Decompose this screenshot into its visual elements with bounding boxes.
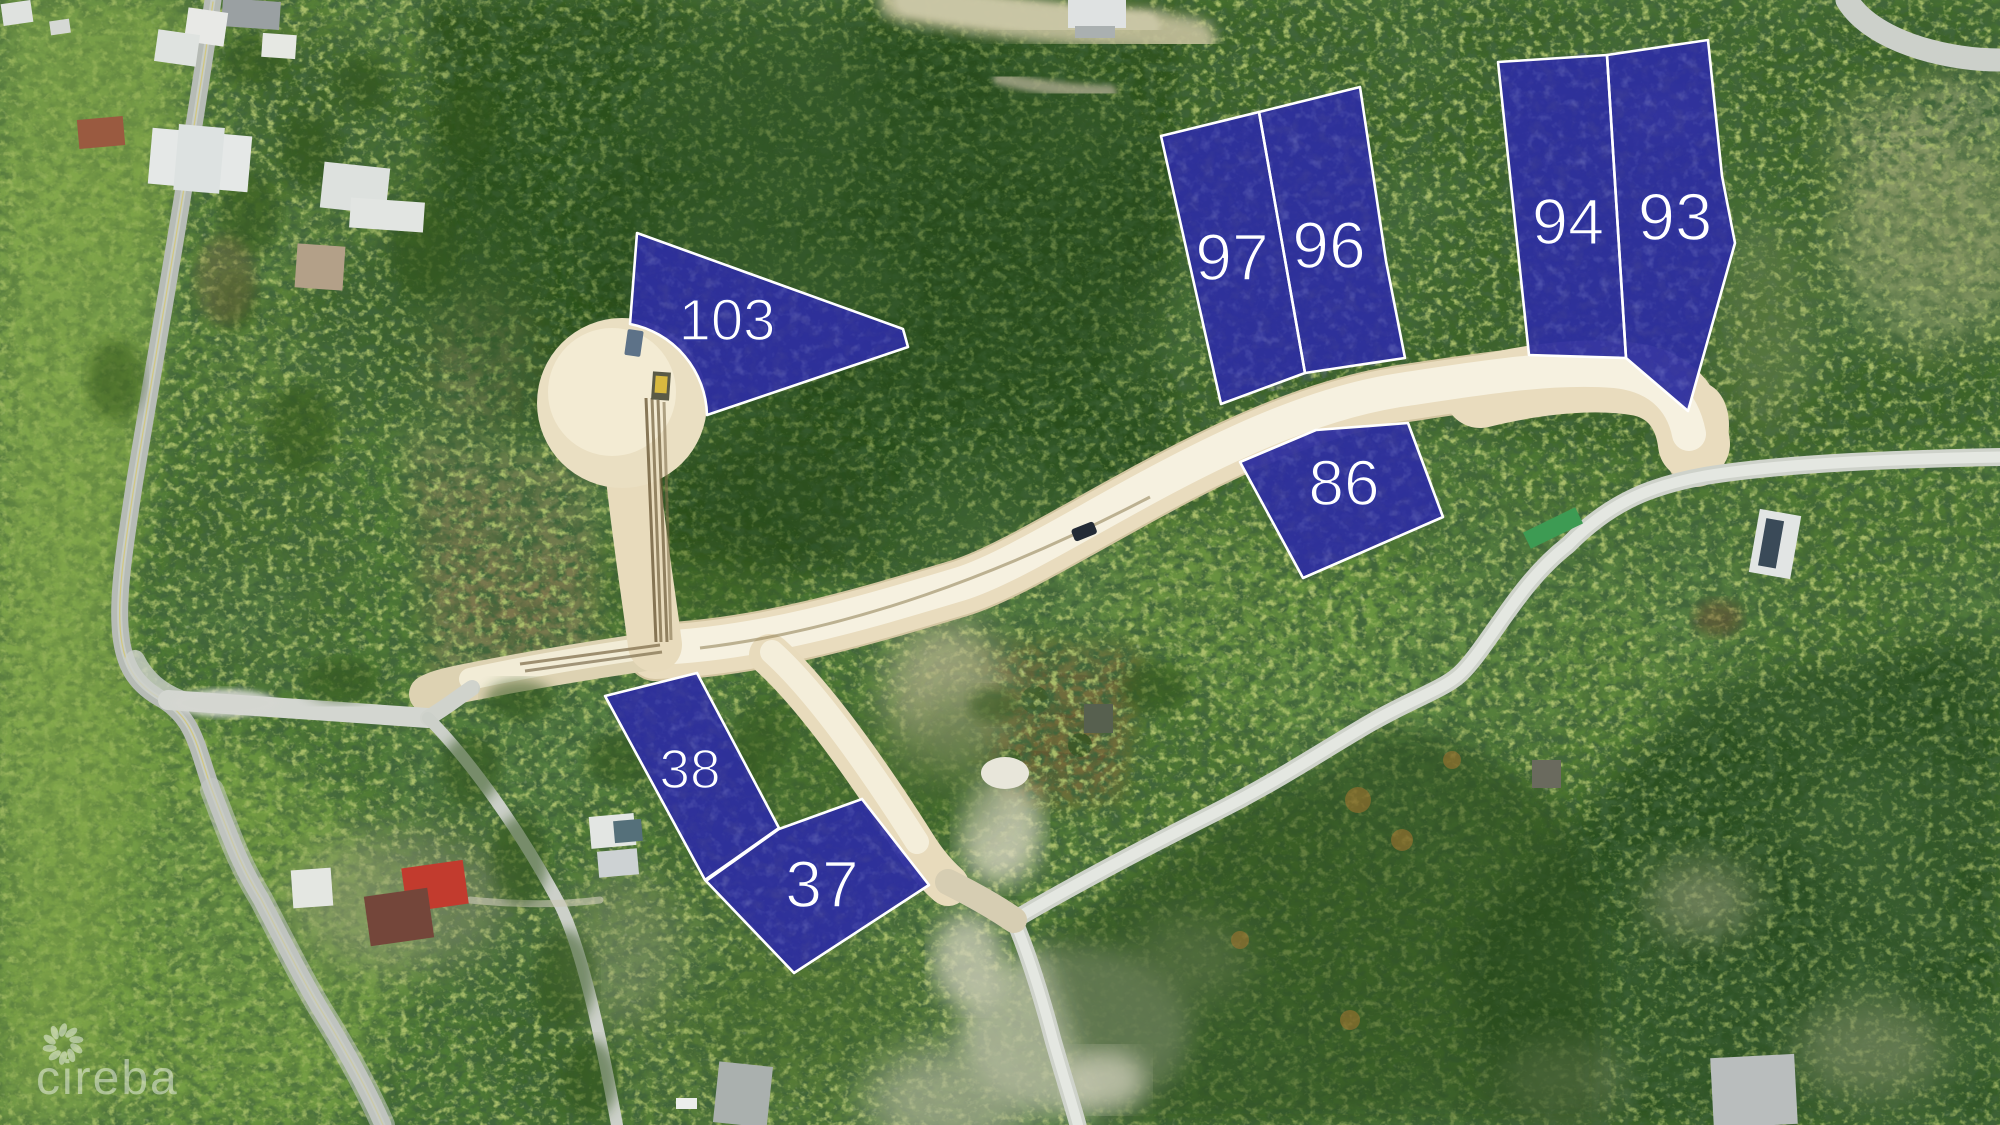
svg-text:103: 103 <box>679 288 776 353</box>
svg-text:37: 37 <box>785 847 858 921</box>
svg-text:94: 94 <box>1532 185 1604 258</box>
svg-text:97: 97 <box>1195 220 1268 294</box>
svg-text:cireba: cireba <box>36 1052 179 1105</box>
svg-text:38: 38 <box>659 738 720 800</box>
svg-text:93: 93 <box>1638 180 1713 255</box>
svg-text:96: 96 <box>1292 208 1365 282</box>
svg-text:86: 86 <box>1308 447 1379 519</box>
